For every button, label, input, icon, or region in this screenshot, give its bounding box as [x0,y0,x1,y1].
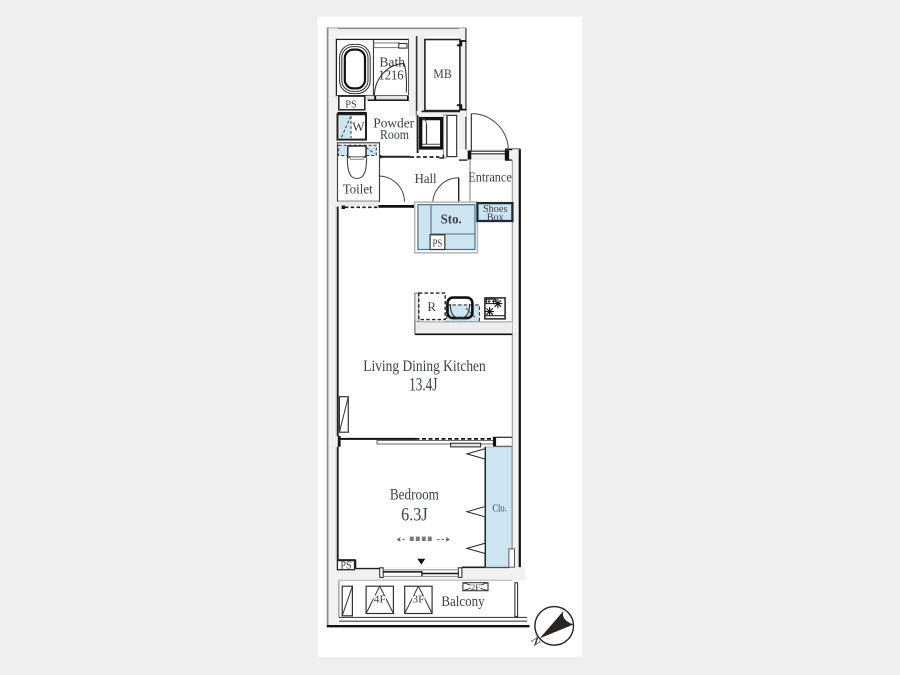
svg-text:Entrance: Entrance [468,170,512,185]
svg-text:PS: PS [345,99,357,111]
svg-text:Sto.: Sto. [441,212,462,227]
svg-text:Room: Room [380,127,409,142]
svg-text:MB: MB [433,67,452,81]
svg-text:3F: 3F [412,595,424,606]
svg-text:W: W [352,119,365,134]
svg-text:Hall: Hall [415,171,437,186]
svg-text:6.3J: 6.3J [401,504,428,525]
svg-text:13.4J: 13.4J [409,375,437,396]
svg-text:Bedroom: Bedroom [390,486,439,503]
svg-text:Clo.: Clo. [492,502,507,514]
svg-text:Balcony: Balcony [441,594,485,610]
svg-text:PS: PS [433,239,443,250]
svg-text:4F: 4F [374,595,386,606]
svg-text:2F: 2F [471,582,481,592]
svg-text:Box: Box [487,211,504,223]
svg-text:PS: PS [340,560,351,571]
svg-text:Toilet: Toilet [343,182,373,197]
svg-text:Living Dining Kitchen: Living Dining Kitchen [363,358,486,375]
svg-text:R: R [427,299,436,314]
